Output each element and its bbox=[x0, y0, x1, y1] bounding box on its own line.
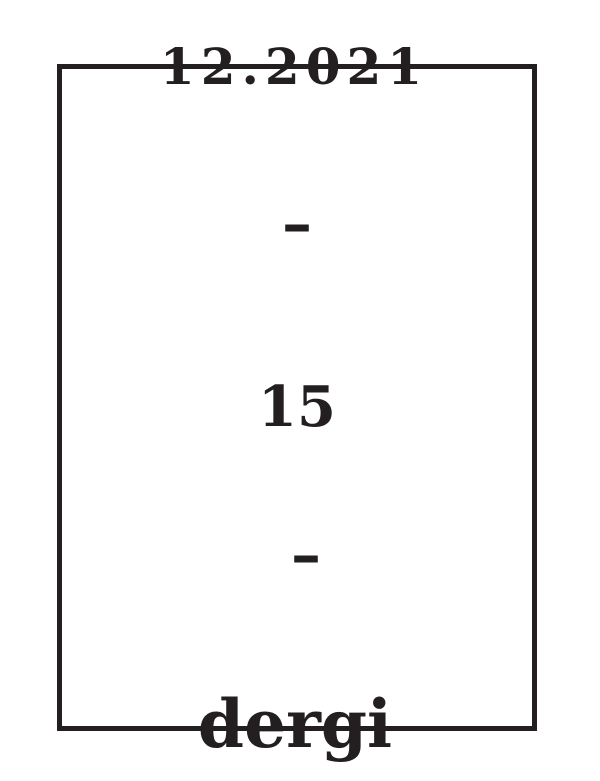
issue-number: 15 bbox=[258, 379, 336, 435]
magazine-title: dergi bbox=[198, 691, 392, 757]
separator-dash-bottom: – bbox=[291, 525, 321, 585]
separator-dash-top: – bbox=[282, 194, 312, 254]
issue-date: 12.2021 bbox=[160, 42, 428, 92]
magazine-cover: 12.2021 – 15 – dergi bbox=[0, 0, 600, 781]
